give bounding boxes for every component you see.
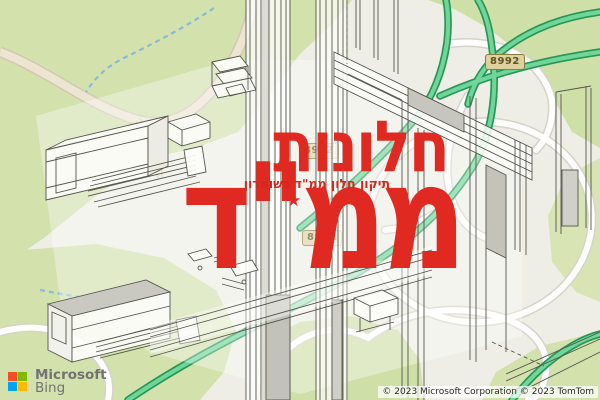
beam-bottom-right	[492, 332, 600, 392]
watermark-title-line2: ממ"ד	[181, 146, 460, 292]
microsoft-logo-icon	[8, 372, 27, 391]
watermark-tagline: תיקון חלון ממ"ד בשומרון	[244, 176, 390, 191]
bing-logo[interactable]: Microsoft Bing	[8, 369, 107, 395]
star-icon: ★	[286, 193, 301, 210]
map-screenshot: 8992 8992 8992	[0, 0, 600, 400]
bing-label: Bing	[35, 382, 107, 395]
right-edge-profiles	[556, 86, 591, 234]
map-copyright: © 2023 Microsoft Corporation © 2023 TomT…	[378, 386, 598, 398]
